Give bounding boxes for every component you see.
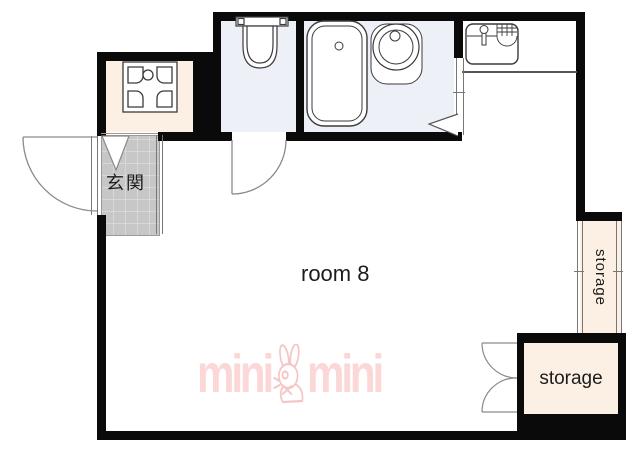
- floorplan-canvas: 玄関 room 8 storage storage mini mini: [0, 0, 640, 456]
- washing-machine-pan-icon: [123, 62, 177, 112]
- toilet-door-swing: [232, 140, 286, 194]
- wash-basin-icon: [371, 24, 422, 84]
- genkan-label: 玄関: [106, 169, 146, 195]
- genkan-door-triangle: [102, 136, 129, 170]
- rabbit-mascot-icon: [273, 344, 306, 404]
- storage-bottom-label: storage: [524, 343, 618, 414]
- watermark-word-right: mini: [307, 347, 381, 401]
- kitchen-sink-icon: [466, 24, 518, 64]
- storage-right-label: storage: [593, 248, 610, 305]
- watermark-word-left: mini: [197, 347, 271, 401]
- bath-folding-door-icon: [429, 114, 458, 136]
- bathtub-icon: [307, 21, 367, 126]
- entrance-door-swing: [23, 137, 97, 211]
- storage-double-doors: [482, 343, 517, 412]
- toilet-icon: [236, 17, 288, 68]
- main-room-label: room 8: [301, 261, 369, 287]
- storage-right-label-box: storage: [580, 221, 622, 333]
- minimini-watermark: mini mini: [197, 344, 381, 404]
